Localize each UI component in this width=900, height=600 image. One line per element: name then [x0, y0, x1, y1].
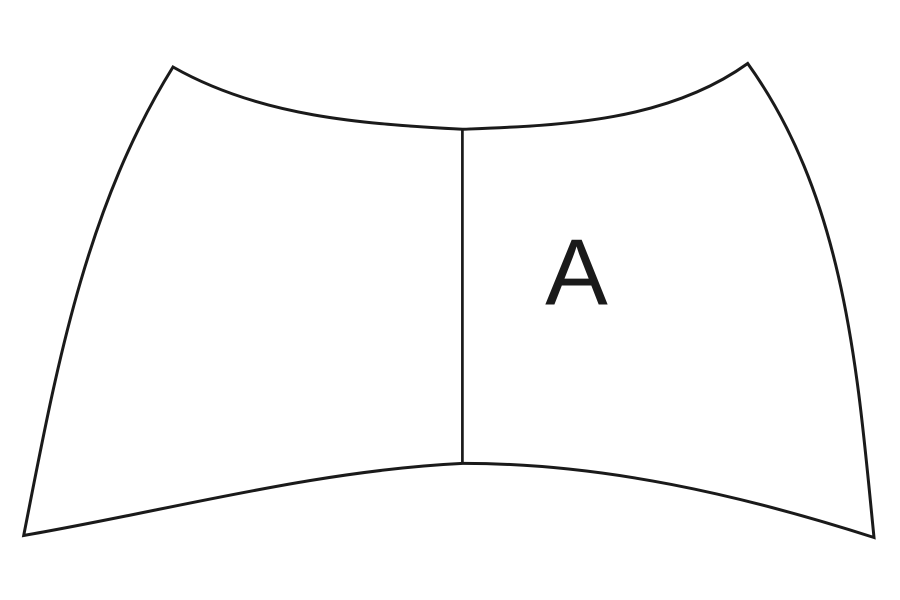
- svg-text:A: A: [545, 219, 608, 324]
